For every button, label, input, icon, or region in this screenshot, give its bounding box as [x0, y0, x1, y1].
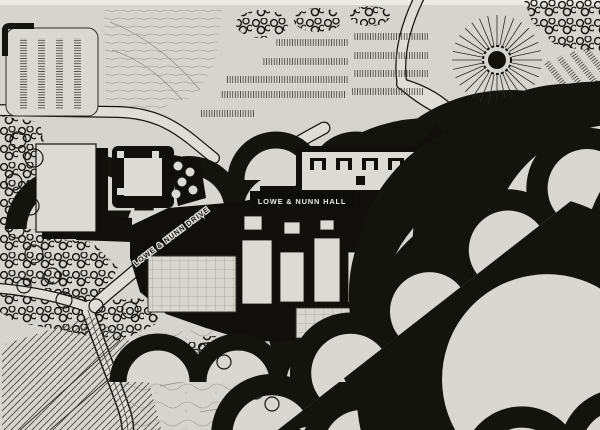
hall-label: LOWE & NUNN HALL [250, 191, 354, 209]
site-plan-photo: LOWE & NUNN HALL LOWE & NUNN DRIVE [0, 0, 600, 430]
west-hall-building [36, 144, 96, 232]
photo-edge [0, 0, 600, 5]
hall-label-text: LOWE & NUNN HALL [258, 197, 347, 206]
site-plan-drawing: LOWE & NUNN HALL LOWE & NUNN DRIVE [0, 0, 600, 430]
